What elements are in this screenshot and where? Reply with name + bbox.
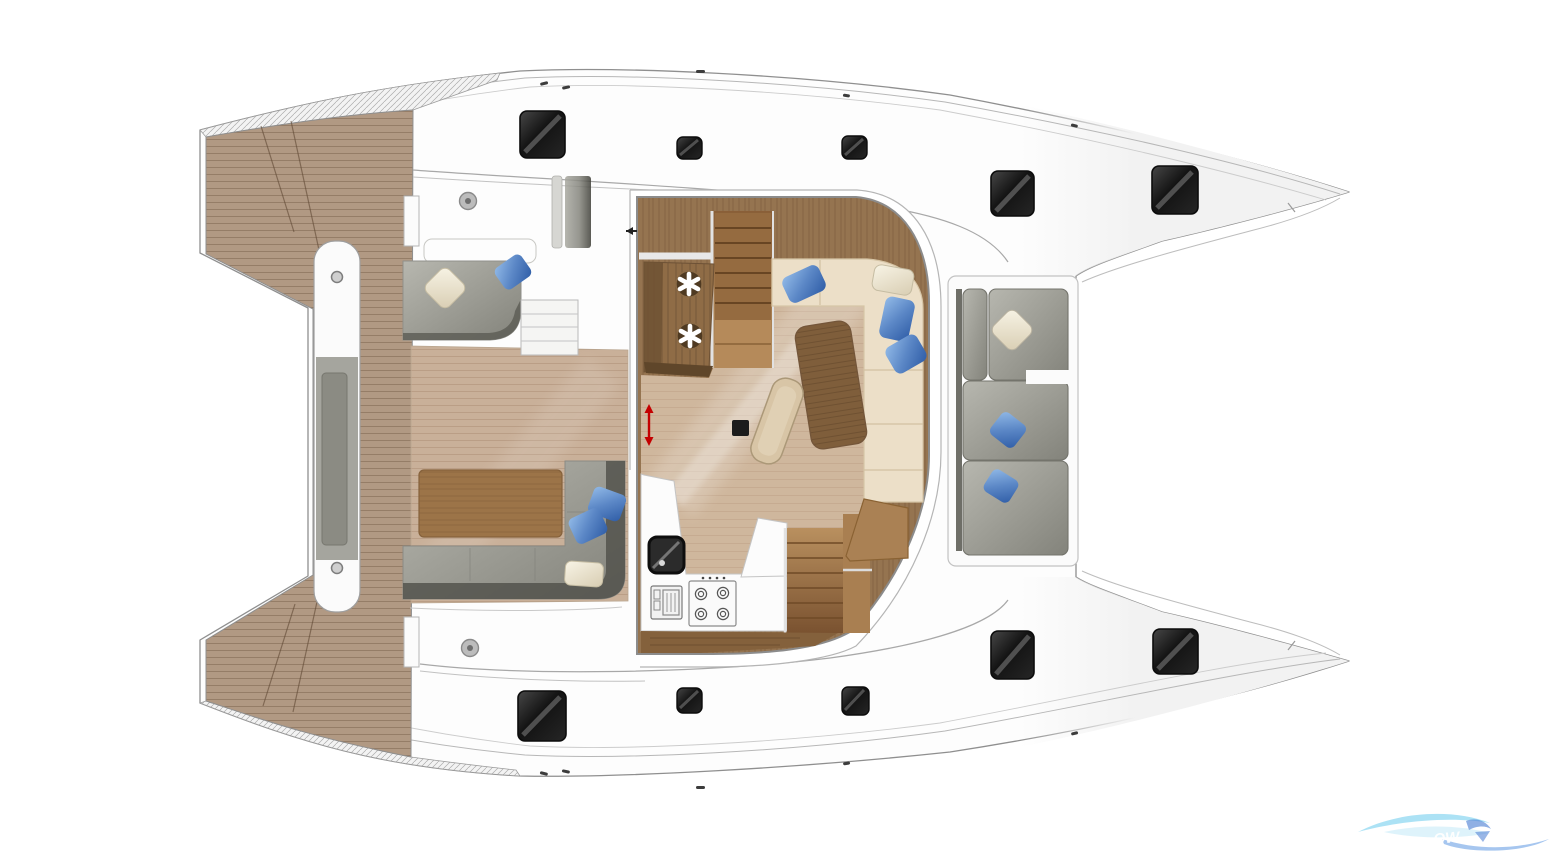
svg-text:OW: OW: [1433, 829, 1462, 848]
